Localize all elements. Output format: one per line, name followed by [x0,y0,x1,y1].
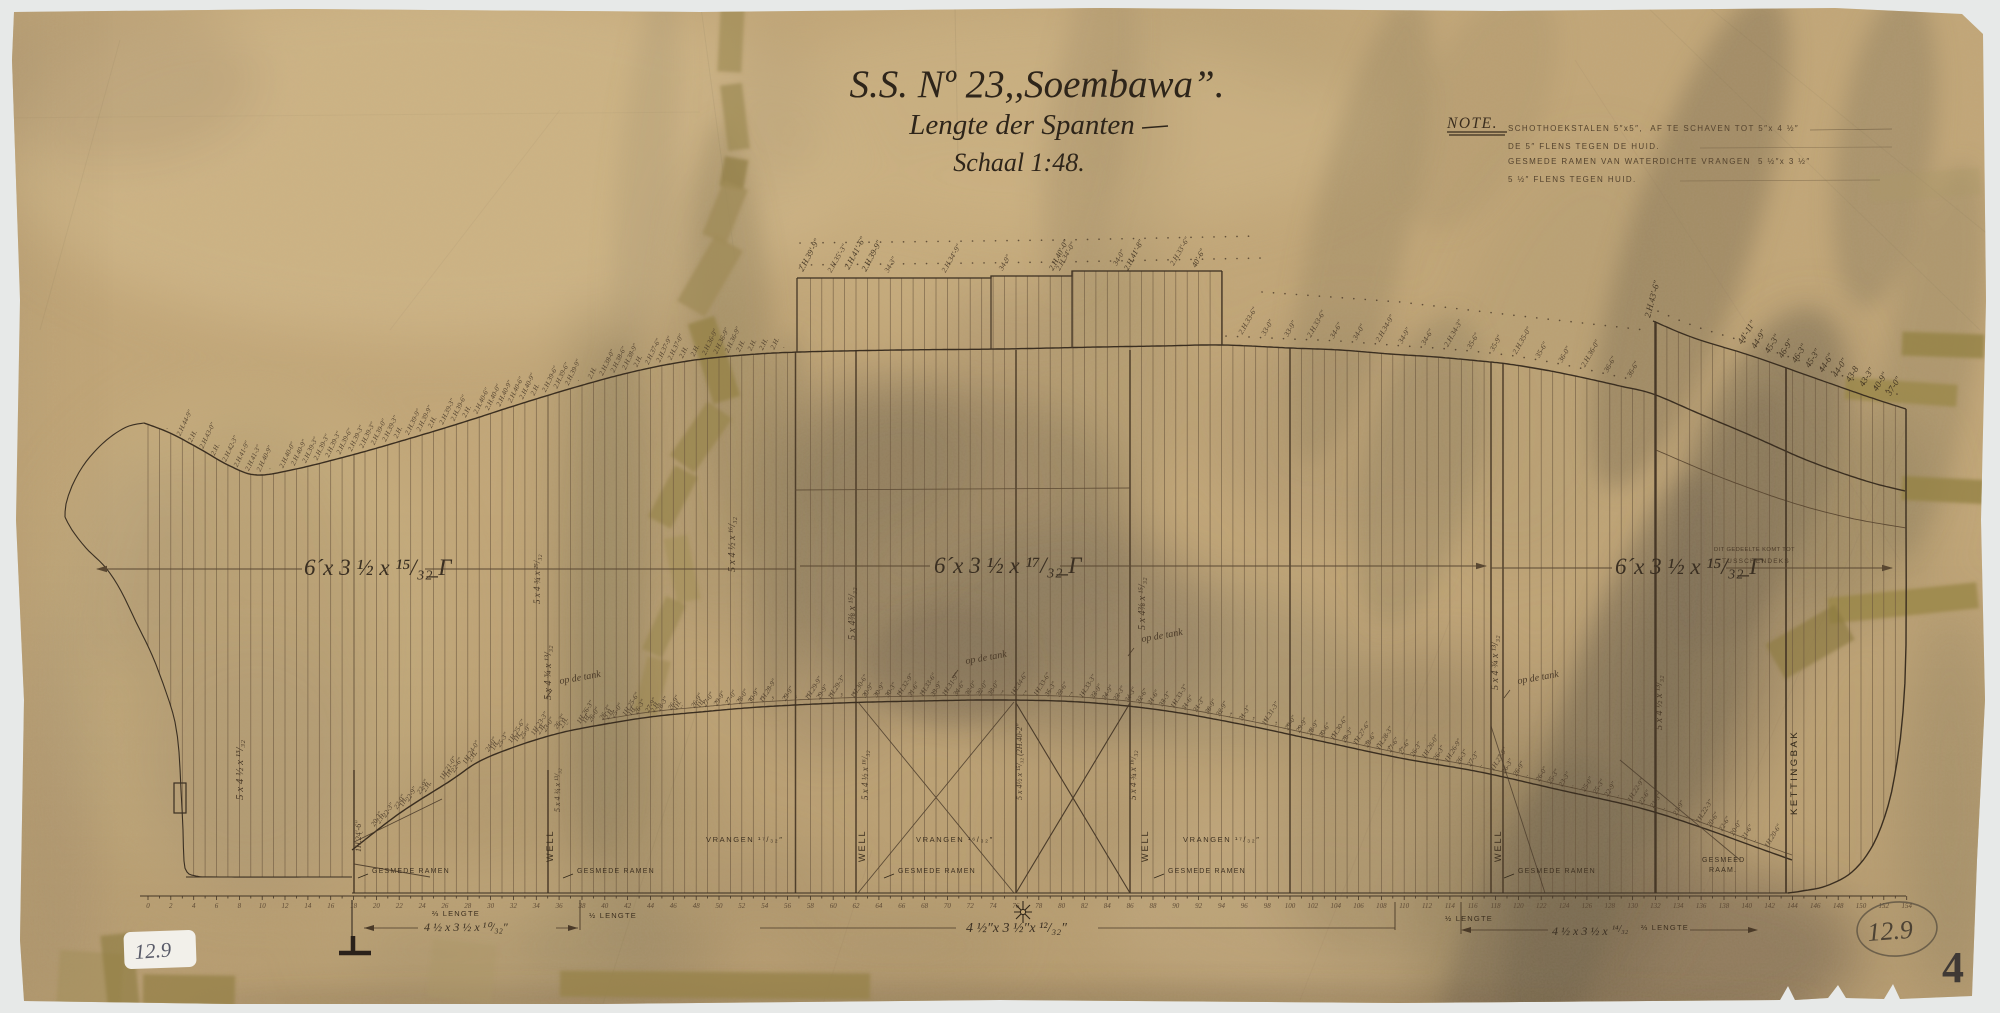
svg-text:24: 24 [419,902,427,910]
svg-text:42: 42 [624,902,632,910]
svg-text:6´x 3 ½ x ¹⁵/₃₂̲ Γ: 6´x 3 ½ x ¹⁵/₃₂̲ Γ [304,555,452,580]
svg-text:5 x 4 ½ x ¹³/₃₂: 5 x 4 ½ x ¹³/₃₂ [234,740,246,800]
svg-text:90: 90 [1172,902,1180,910]
svg-text:72: 72 [967,902,975,910]
svg-text:122: 122 [1536,902,1547,910]
svg-text:Lengte der Spanten: Lengte der Spanten [908,109,1135,141]
svg-text:48: 48 [693,902,701,910]
svg-text:112: 112 [1422,902,1432,910]
svg-text:5 x 4 ¾ x ²⁵/₃₂: 5 x 4 ¾ x ²⁵/₃₂ [532,554,542,604]
svg-text:40: 40 [601,902,609,910]
svg-text:102: 102 [1308,902,1319,910]
svg-text:136: 136 [1696,902,1707,910]
svg-text:WELL: WELL [545,829,555,862]
svg-text:KETTINGBAK: KETTINGBAK [1789,730,1800,815]
svg-text:½ LENGTE: ½ LENGTE [589,911,637,920]
svg-text:5 x 4 ½ x ¹⁶/₃₂: 5 x 4 ½ x ¹⁶/₃₂ [727,516,738,572]
svg-text:132: 132 [1650,902,1661,910]
svg-text:4 ½ x 3 ½ x: 4 ½ x 3 ½ x [1552,924,1608,938]
svg-text:84: 84 [1104,902,1112,910]
svg-text:4: 4 [192,902,196,910]
svg-text:96: 96 [1241,902,1249,910]
svg-text:4 ½ x 3 ½ x ¹⁰/₃₂″: 4 ½ x 3 ½ x ¹⁰/₃₂″ [424,920,509,934]
svg-text:22: 22 [396,902,404,910]
svg-text:5 x 4⅜ x ¹⁵/₃₂: 5 x 4⅜ x ¹⁵/₃₂ [847,587,858,640]
svg-text:GESMEDE RAMEN VAN WATERDICHTE: GESMEDE RAMEN VAN WATERDICHTE VRANGEN 5 … [1508,157,1811,166]
svg-text:6: 6 [215,902,219,910]
svg-text:92: 92 [1195,902,1203,910]
svg-text:GESMEDE RAMEN: GESMEDE RAMEN [372,868,450,875]
svg-text:120: 120 [1513,902,1524,910]
svg-text:5 x 4 ¾ x ¹³/₃₂: 5 x 4 ¾ x ¹³/₃₂ [1490,635,1501,690]
svg-text:76: 76 [1012,902,1020,910]
svg-text:138: 138 [1719,902,1730,910]
svg-text:82: 82 [1081,902,1089,910]
svg-text:5 x 4⅜ x ¹⁵/₃₂: 5 x 4⅜ x ¹⁵/₃₂ [1137,577,1148,630]
svg-text:14: 14 [304,902,312,910]
svg-text:124: 124 [1559,902,1570,910]
svg-text:⅔ LENGTE: ⅔ LENGTE [432,909,480,918]
svg-text:20: 20 [373,902,381,910]
svg-text:18: 18 [350,902,358,910]
svg-text:46: 46 [670,902,678,910]
svg-text:NOTE.: NOTE. [1446,115,1498,132]
svg-text:74: 74 [990,902,998,910]
svg-text:78: 78 [1035,902,1043,910]
svg-text:142: 142 [1764,902,1775,910]
svg-text:64: 64 [875,902,883,910]
svg-text:52: 52 [738,902,746,910]
svg-text:WELL: WELL [1140,829,1150,862]
svg-text:110: 110 [1399,902,1409,910]
svg-text:144: 144 [1787,902,1798,910]
svg-text:88: 88 [1150,902,1158,910]
svg-text:94: 94 [1218,902,1226,910]
svg-text:54: 54 [761,902,769,910]
svg-text:¹⁴/₃₂: ¹⁴/₃₂ [1612,924,1629,935]
svg-text:30: 30 [486,902,495,910]
svg-text:GESMEDE RAMEN: GESMEDE RAMEN [577,868,655,875]
svg-text:128: 128 [1605,902,1616,910]
svg-text:RAAM.: RAAM. [1709,867,1737,874]
svg-text:6´x 3 ½ x ¹⁷/₃₂̲ Γ: 6´x 3 ½ x ¹⁷/₃₂̲ Γ [934,553,1082,578]
svg-text:GESMEDE RAMEN: GESMEDE RAMEN [1168,868,1246,875]
svg-text:5 x 4 ¾ x ¹³/₃₂: 5 x 4 ¾ x ¹³/₃₂ [543,645,554,700]
svg-text:106: 106 [1353,902,1364,910]
svg-text:S.S. Nº 23,,Soembawa”.: S.S. Nº 23,,Soembawa”. [849,63,1224,106]
svg-text:DIT GEDEELTE KOMT TOT: DIT GEDEELTE KOMT TOT [1714,547,1795,553]
svg-text:98: 98 [1264,902,1272,910]
svg-text:12.9: 12.9 [134,937,173,964]
svg-text:150: 150 [1856,902,1867,910]
svg-text:68: 68 [921,902,929,910]
svg-text:½ LENGTE: ½ LENGTE [1445,914,1493,923]
svg-text:16: 16 [327,902,335,910]
svg-text:1H.24′-6″: 1H.24′-6″ [354,820,363,852]
svg-text:146: 146 [1810,902,1821,910]
svg-text:12: 12 [282,902,290,910]
svg-text:50: 50 [716,902,724,910]
svg-text:126: 126 [1582,902,1593,910]
svg-text:10: 10 [259,902,267,910]
svg-text:VRANGEN ¹⁷/₃₂″: VRANGEN ¹⁷/₃₂″ [706,835,784,844]
svg-text:5 x 4 ¾ x ¹⁶/₃₂: 5 x 4 ¾ x ¹⁶/₃₂ [1128,750,1138,800]
svg-text:62: 62 [853,902,861,910]
svg-text:Schaal 1:48.: Schaal 1:48. [953,148,1084,177]
svg-text:5 x 4½ x ¹⁵/₃₂ (2H.40-2″: 5 x 4½ x ¹⁵/₃₂ (2H.40-2″ [1015,723,1024,800]
svg-text:116: 116 [1468,902,1478,910]
svg-text:108: 108 [1376,902,1387,910]
svg-text:5 ½″ FLENS TEGEN HUID.: 5 ½″ FLENS TEGEN HUID. [1508,175,1637,184]
svg-text:GESMEDE RAMEN: GESMEDE RAMEN [898,868,976,875]
svg-text:38: 38 [578,902,587,910]
svg-text:GESMEED: GESMEED [1702,857,1745,864]
svg-text:5 x 4 ½ x ¹⁶/₃₂: 5 x 4 ½ x ¹⁶/₃₂ [860,750,870,800]
svg-text:60: 60 [830,902,838,910]
svg-text:66: 66 [898,902,906,910]
svg-text:134: 134 [1673,902,1684,910]
svg-text:36: 36 [555,902,564,910]
svg-text:12.9: 12.9 [1866,915,1913,947]
svg-text:WELL: WELL [1493,829,1503,862]
svg-text:TUSSCHENDEKS: TUSSCHENDEKS [1722,558,1790,565]
svg-text:WELL: WELL [857,829,867,862]
svg-text:70: 70 [944,902,952,910]
svg-text:4: 4 [1942,943,1964,992]
svg-text:SCHOTHOEKSTALEN 5″x5″, AF TE: SCHOTHOEKSTALEN 5″x5″, AF TE SCHAVEN TOT… [1508,124,1799,133]
svg-text:32: 32 [509,902,518,910]
svg-text:DE 5″ FLENS TEGEN DE HUID.: DE 5″ FLENS TEGEN DE HUID. [1508,142,1660,151]
svg-text:44: 44 [647,902,655,910]
svg-text:5 x 4 ½ x ¹³/₃₂: 5 x 4 ½ x ¹³/₃₂ [1654,675,1665,730]
svg-text:2: 2 [169,902,173,910]
svg-text:56: 56 [784,902,792,910]
svg-text:130: 130 [1627,902,1638,910]
svg-text:34: 34 [532,902,541,910]
svg-text:86: 86 [1127,902,1135,910]
svg-text:140: 140 [1742,902,1753,910]
svg-text:114: 114 [1445,902,1455,910]
svg-text:8: 8 [238,902,242,910]
svg-text:80: 80 [1058,902,1066,910]
svg-text:5 x 4 ¾ x ¹³/₃₂: 5 x 4 ¾ x ¹³/₃₂ [553,768,562,812]
svg-text:VRANGEN ¹⁷/₃₂″: VRANGEN ¹⁷/₃₂″ [1183,835,1261,844]
svg-text:GESMEDE RAMEN: GESMEDE RAMEN [1518,868,1596,875]
svg-text:⅔ LENGTE: ⅔ LENGTE [1641,923,1689,932]
svg-text:118: 118 [1491,902,1501,910]
svg-text:100: 100 [1285,902,1296,910]
svg-text:4 ½″x 3 ½″x ¹²/₃₂″: 4 ½″x 3 ½″x ¹²/₃₂″ [966,921,1067,936]
svg-text:58: 58 [807,902,815,910]
svg-text:VRANGEN ¹⁶/₃₂″: VRANGEN ¹⁶/₃₂″ [916,835,994,844]
svg-text:0: 0 [146,902,150,910]
svg-text:104: 104 [1330,902,1341,910]
svg-text:148: 148 [1833,902,1844,910]
